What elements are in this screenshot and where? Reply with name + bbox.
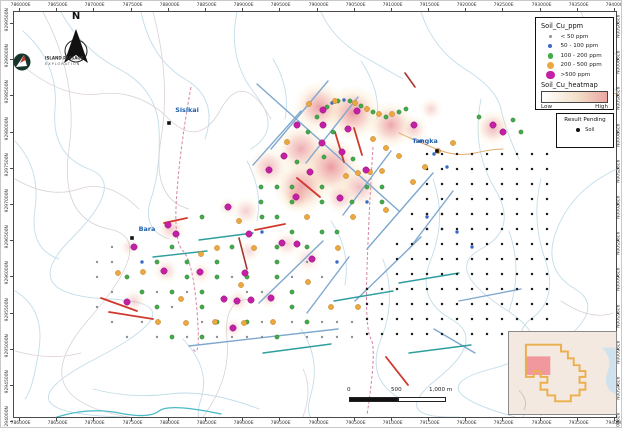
sample-point-green <box>359 104 363 108</box>
legend-dot-icon <box>546 71 555 80</box>
axis-tick <box>205 8 206 11</box>
easting-label-bottom: 788500E <box>197 421 214 425</box>
sample-point-magenta <box>234 298 240 304</box>
sample-point-pending <box>441 168 443 170</box>
sample-point-pending <box>411 303 413 305</box>
sample-point-pending <box>546 213 548 215</box>
sample-point-pending <box>486 318 488 320</box>
sample-point-pending <box>441 288 443 290</box>
sample-point-pending <box>546 318 548 320</box>
sample-point-pending <box>546 243 548 245</box>
sample-point-pending <box>396 273 398 275</box>
sample-point-magenta <box>246 231 252 237</box>
sample-point-orange <box>343 173 348 178</box>
sample-point-pending <box>396 303 398 305</box>
sample-point-pending <box>456 198 458 200</box>
axis-tick <box>540 418 541 421</box>
sample-point-pending <box>516 213 518 215</box>
sample-point-green <box>140 290 144 294</box>
sample-point-pending <box>501 243 503 245</box>
sample-point-pending <box>486 228 488 230</box>
sample-point-blue <box>365 200 368 203</box>
sample-point-blue <box>445 165 448 168</box>
sample-point-magenta <box>294 122 300 128</box>
sample-point-pending <box>456 288 458 290</box>
sample-point-pending <box>456 333 458 335</box>
track-line <box>303 369 308 417</box>
sample-point-pending <box>441 333 443 335</box>
axis-tick <box>616 132 619 133</box>
easting-label-top: 788500E <box>197 3 214 7</box>
sample-point-pending <box>396 318 398 320</box>
easting-label-top: 792000E <box>457 3 474 7</box>
easting-label-top: 787000E <box>85 3 102 7</box>
sample-point-magenta <box>124 299 130 305</box>
sample-point-green <box>290 200 294 204</box>
axis-tick <box>10 204 13 205</box>
sample-point-pending <box>426 228 428 230</box>
sample-point-orange <box>328 304 333 309</box>
sample-point-green <box>275 215 279 219</box>
sample-point-green <box>365 185 369 189</box>
heatmap-legend-title: Soil_Cu_heatmap <box>541 81 609 89</box>
sample-point-pending <box>486 153 488 155</box>
sample-point-gray <box>171 306 173 308</box>
sample-point-gray <box>261 336 263 338</box>
sample-point-pending <box>441 273 443 275</box>
sample-point-magenta <box>363 167 369 173</box>
sample-point-pending <box>426 213 428 215</box>
sample-point-magenta <box>173 231 179 237</box>
sample-point-orange <box>376 111 381 116</box>
sample-point-gray <box>231 336 233 338</box>
sample-point-pending <box>441 198 443 200</box>
axis-tick <box>10 168 13 169</box>
sample-point-pending <box>411 213 413 215</box>
sample-point-gray <box>336 321 338 323</box>
sample-point-gray <box>186 291 188 293</box>
sample-point-pending <box>411 318 413 320</box>
sample-point-green <box>170 245 174 249</box>
sample-point-orange <box>183 320 188 325</box>
sample-point-pending <box>441 228 443 230</box>
sample-point-pending <box>456 213 458 215</box>
heatmap-high-label: High <box>595 104 608 110</box>
sample-point-blue <box>455 230 458 233</box>
sample-point-pending <box>546 228 548 230</box>
legend-dot-icon <box>549 35 552 38</box>
sample-point-pending <box>471 288 473 290</box>
sample-point-magenta <box>309 256 315 262</box>
axis-tick <box>354 418 355 421</box>
sample-point-pending <box>396 333 398 335</box>
sample-point-orange <box>352 100 357 105</box>
inset-stream <box>519 391 526 411</box>
stream-line <box>93 389 259 409</box>
stream-line <box>376 259 401 399</box>
legend-item-label: 100 - 200 ppm <box>561 53 602 59</box>
sample-point-pending <box>546 198 548 200</box>
sample-point-pending <box>471 213 473 215</box>
sample-point-orange <box>238 282 243 287</box>
axis-tick <box>391 418 392 421</box>
logo-line1: ISLAND PASSAGE <box>45 56 83 61</box>
sample-point-pending <box>471 333 473 335</box>
sample-point-magenta <box>279 240 285 246</box>
stream-line <box>552 169 617 349</box>
axis-tick <box>317 418 318 421</box>
sample-point-green <box>315 115 319 119</box>
sample-point-pending <box>366 333 368 335</box>
sample-point-pending <box>456 243 458 245</box>
sample-point-orange <box>383 207 388 212</box>
sample-point-pending <box>471 153 473 155</box>
northing-label-left: 9298000N <box>5 123 9 140</box>
sample-point-gray <box>351 321 353 323</box>
sample-point-pending <box>501 228 503 230</box>
sample-point-pending <box>516 243 518 245</box>
sample-point-pending <box>516 318 518 320</box>
legend-box: Soil_Cu_ppm < 50 ppm50 - 100 ppm100 - 20… <box>535 17 614 110</box>
sample-point-pending <box>441 243 443 245</box>
sample-point-green <box>290 290 294 294</box>
sample-point-green <box>371 110 375 114</box>
axis-tick <box>242 418 243 421</box>
sample-point-pending <box>531 168 533 170</box>
easting-label-top: 786500E <box>48 3 65 7</box>
sample-point-pending <box>396 258 398 260</box>
axis-tick <box>428 418 429 421</box>
sample-point-green <box>200 335 204 339</box>
easting-label-bottom: 787500E <box>122 421 139 425</box>
sample-point-green <box>230 245 234 249</box>
sample-point-orange <box>389 111 394 116</box>
sample-point-pending <box>471 318 473 320</box>
sample-point-pending <box>411 333 413 335</box>
legend-items: < 50 ppm50 - 100 ppm100 - 200 ppm200 - 5… <box>540 32 609 80</box>
scalebar-black-segment <box>349 397 398 402</box>
sample-point-pending <box>501 318 503 320</box>
axis-tick <box>616 59 619 60</box>
northing-label-left: 9296000N <box>5 268 9 285</box>
sample-point-green <box>290 185 294 189</box>
axis-tick <box>19 8 20 11</box>
sample-point-pending <box>531 288 533 290</box>
legend-item-label: < 50 ppm <box>561 34 589 40</box>
sample-point-pending <box>531 153 533 155</box>
steel-line <box>459 289 521 301</box>
sample-point-pending <box>426 183 428 185</box>
heatmap-low-label: Low <box>541 104 552 110</box>
sample-point-pending <box>471 168 473 170</box>
sample-point-magenta <box>320 107 326 113</box>
easting-label-top: 791500E <box>420 3 437 7</box>
teal-line <box>399 273 459 283</box>
easting-label-top: 786000E <box>11 3 28 7</box>
legend-item: 100 - 200 ppm <box>540 51 609 61</box>
sample-point-green <box>511 118 515 122</box>
sample-point-pending <box>441 258 443 260</box>
sample-point-orange <box>155 319 160 324</box>
axis-tick <box>614 8 615 11</box>
easting-label-bottom: 792500E <box>494 421 511 425</box>
legend-item-label: 200 - 500 ppm <box>561 62 602 68</box>
sample-point-pending <box>426 198 428 200</box>
sample-point-pending <box>471 258 473 260</box>
axis-tick <box>502 418 503 421</box>
sample-point-magenta <box>242 270 248 276</box>
sample-point-gray <box>321 336 323 338</box>
sample-point-green <box>477 115 481 119</box>
sample-point-orange <box>178 296 183 301</box>
sample-point-green <box>290 230 294 234</box>
sample-point-gray <box>156 291 158 293</box>
sample-point-orange <box>270 319 275 324</box>
sample-point-pending <box>426 273 428 275</box>
axis-tick <box>10 421 13 422</box>
sample-point-gray <box>231 276 233 278</box>
sample-point-magenta <box>221 296 227 302</box>
sample-point-pending <box>531 198 533 200</box>
sample-point-pending <box>501 273 503 275</box>
easting-label-top: 793500E <box>568 3 585 7</box>
scalebar-1000: 1,000 m <box>429 387 452 393</box>
legend-item: 200 - 500 ppm <box>540 61 609 71</box>
sample-point-orange <box>379 168 384 173</box>
village-label: Tangka <box>412 137 438 145</box>
easting-label-bottom: 790000E <box>308 421 325 425</box>
sample-point-pending <box>531 243 533 245</box>
track-line <box>203 299 251 417</box>
track-line <box>15 351 81 357</box>
axis-tick <box>502 8 503 11</box>
sample-point-blue <box>140 260 143 263</box>
red-line <box>386 357 408 385</box>
teal-line <box>199 233 253 240</box>
sample-point-pending <box>456 273 458 275</box>
axis-tick <box>10 313 13 314</box>
sample-point-magenta <box>307 169 313 175</box>
sample-point-green <box>384 115 388 119</box>
sample-point-gray <box>306 336 308 338</box>
sample-point-pending <box>441 213 443 215</box>
sample-point-orange <box>198 251 203 256</box>
sample-point-pending <box>456 303 458 305</box>
stream-line <box>509 231 516 311</box>
north-label: N <box>69 11 83 22</box>
sample-point-magenta <box>490 122 496 128</box>
pending-soil-label: Soil <box>585 127 594 133</box>
map-figure: SisikaiBaraTangka N ISLAND PASSAGE EXPLO… <box>0 0 622 428</box>
easting-label-bottom: 786500E <box>48 421 65 425</box>
northing-label-left: 9299000N <box>5 51 9 68</box>
northing-label-left: 9299500N <box>5 15 9 32</box>
axis-tick <box>616 23 619 24</box>
sample-point-pending <box>426 153 428 155</box>
sample-point-green <box>331 130 335 134</box>
sample-point-gray <box>246 336 248 338</box>
sample-point-green <box>380 200 384 204</box>
sample-point-orange <box>306 101 311 106</box>
result-pending-title: Result Pending <box>559 117 611 123</box>
darkred-line <box>405 73 415 87</box>
sample-point-green <box>320 200 324 204</box>
sample-point-gray <box>291 321 293 323</box>
stream-line <box>23 31 153 417</box>
axis-tick <box>616 168 619 169</box>
sample-point-orange <box>236 218 241 223</box>
sample-point-magenta <box>281 153 287 159</box>
logo-line2: EXPLORATION <box>45 62 80 66</box>
sample-point-gray <box>261 321 263 323</box>
sample-point-orange <box>450 140 455 145</box>
axis-tick <box>10 349 13 350</box>
easting-label-bottom: 793500E <box>568 421 585 425</box>
sample-point-pending <box>516 198 518 200</box>
easting-label-top: 790000E <box>308 3 325 7</box>
sample-point-magenta <box>165 222 171 228</box>
sample-point-pending <box>411 243 413 245</box>
sample-point-gray <box>321 321 323 323</box>
sample-point-pending <box>471 228 473 230</box>
sample-point-green <box>275 275 279 279</box>
sample-point-pending <box>426 333 428 335</box>
axis-tick <box>242 8 243 11</box>
axis-tick <box>168 418 169 421</box>
legend-dot-icon <box>548 53 554 59</box>
sample-point-green <box>170 290 174 294</box>
sample-point-pending <box>456 168 458 170</box>
village-marker <box>130 236 134 240</box>
sample-point-magenta <box>354 108 360 114</box>
river-line <box>57 408 221 417</box>
axis-tick <box>93 8 94 11</box>
sample-point-pending <box>381 318 383 320</box>
sample-point-blue <box>425 215 428 218</box>
sample-point-pending <box>486 258 488 260</box>
scale-bar: 0 500 1,000 m <box>341 387 461 407</box>
axis-tick <box>10 59 13 60</box>
sample-point-green <box>260 215 264 219</box>
easting-label-bottom: 792000E <box>457 421 474 425</box>
axis-tick <box>10 132 13 133</box>
sample-point-pending <box>501 288 503 290</box>
axis-tick <box>56 418 57 421</box>
axis-tick <box>616 204 619 205</box>
sample-point-green <box>397 110 401 114</box>
sample-point-gray <box>96 276 98 278</box>
scalebar-white-segment <box>398 397 446 402</box>
easting-label-bottom: 789500E <box>271 421 288 425</box>
sample-point-pending <box>501 153 503 155</box>
sample-point-orange <box>212 319 217 324</box>
sample-point-pending <box>456 258 458 260</box>
sample-point-gray <box>321 276 323 278</box>
sample-point-pending <box>486 213 488 215</box>
sample-point-green <box>155 305 159 309</box>
sample-point-blue <box>470 245 473 248</box>
sample-point-pending <box>396 243 398 245</box>
sample-point-gray <box>246 291 248 293</box>
axis-tick <box>540 8 541 11</box>
easting-label-top: 793000E <box>531 3 548 7</box>
sample-point-gray <box>216 336 218 338</box>
northing-label-left: 9296500N <box>5 232 9 249</box>
easting-label-top: 789500E <box>271 3 288 7</box>
sample-point-blue <box>342 98 345 101</box>
sample-point-orange <box>140 269 145 274</box>
axis-tick <box>19 418 20 421</box>
sample-point-pending <box>456 318 458 320</box>
sample-point-pending <box>486 303 488 305</box>
sample-point-green <box>290 305 294 309</box>
axis-tick <box>279 418 280 421</box>
sample-point-gray <box>186 336 188 338</box>
sample-point-gray <box>141 321 143 323</box>
sample-point-green <box>275 245 279 249</box>
axis-tick <box>428 8 429 11</box>
axis-tick <box>205 418 206 421</box>
sample-point-gray <box>96 261 98 263</box>
sample-point-pending <box>426 288 428 290</box>
sample-point-pending <box>516 288 518 290</box>
northing-label-left: 9295500N <box>5 304 9 321</box>
sample-point-green <box>275 185 279 189</box>
sample-point-green <box>200 215 204 219</box>
easting-label-bottom: 788000E <box>159 421 176 425</box>
sample-point-orange <box>335 245 340 250</box>
axis-tick <box>577 8 578 11</box>
sample-point-pending <box>546 168 548 170</box>
sample-point-pending <box>366 303 368 305</box>
easting-label-bottom: 790500E <box>345 421 362 425</box>
axis-tick <box>616 95 619 96</box>
axis-tick <box>577 418 578 421</box>
sample-point-green <box>320 230 324 234</box>
sample-point-pending <box>501 213 503 215</box>
sample-point-green <box>322 155 326 159</box>
legend-item: 50 - 100 ppm <box>540 42 609 52</box>
heatmap-gradient-bar <box>541 91 608 103</box>
sample-point-green <box>200 290 204 294</box>
steel-line <box>189 329 338 346</box>
sample-point-orange <box>214 245 219 250</box>
sample-point-green <box>350 200 354 204</box>
sample-point-pending <box>501 258 503 260</box>
axis-tick <box>131 8 132 11</box>
sample-point-blue <box>260 230 263 233</box>
easting-label-bottom: 789000E <box>234 421 251 425</box>
axis-tick <box>10 276 13 277</box>
sample-point-green <box>275 335 279 339</box>
sample-point-orange <box>350 214 355 219</box>
village-label: Bara <box>139 225 156 233</box>
company-logo: ISLAND PASSAGE EXPLORATION <box>13 52 123 74</box>
easting-label-bottom: 791000E <box>382 421 399 425</box>
track-line <box>15 179 139 209</box>
axis-tick <box>10 385 13 386</box>
sample-point-orange <box>355 304 360 309</box>
sample-point-pending <box>366 288 368 290</box>
easting-label-top: 792500E <box>494 3 511 7</box>
sample-point-pending <box>546 288 548 290</box>
sample-point-pending <box>531 273 533 275</box>
sample-point-pending <box>426 318 428 320</box>
sample-point-pending <box>471 183 473 185</box>
easting-label-bottom: 787000E <box>85 421 102 425</box>
sample-point-green <box>200 305 204 309</box>
sample-point-magenta <box>197 269 203 275</box>
